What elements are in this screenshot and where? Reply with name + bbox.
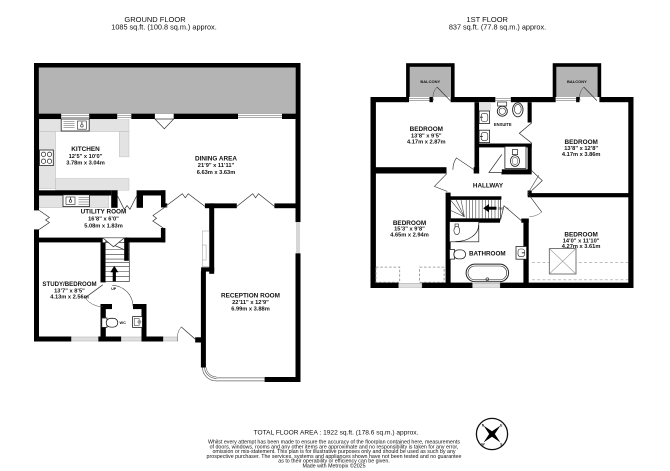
svg-text:STUDY/BEDROOM: STUDY/BEDROOM xyxy=(42,281,96,288)
svg-text:4.27m x 3.61m: 4.27m x 3.61m xyxy=(562,244,601,250)
svg-text:3.78m x 3.04m: 3.78m x 3.04m xyxy=(66,161,105,167)
svg-text:13’7" x 8’5": 13’7" x 8’5" xyxy=(54,288,85,294)
svg-text:22’11" x 12’9": 22’11" x 12’9" xyxy=(232,300,269,306)
svg-text:RECEPTION ROOM: RECEPTION ROOM xyxy=(221,293,280,300)
svg-text:6.99m x 3.88m: 6.99m x 3.88m xyxy=(231,307,270,313)
svg-text:WC: WC xyxy=(120,321,127,325)
svg-text:BEDROOM: BEDROOM xyxy=(410,126,443,133)
svg-text:ENSUITE: ENSUITE xyxy=(494,122,512,127)
svg-text:837 sq.ft. (77.8 sq.m.) approx: 837 sq.ft. (77.8 sq.m.) approx. xyxy=(449,23,546,32)
svg-text:4.65m x 2.94m: 4.65m x 2.94m xyxy=(390,233,429,239)
svg-text:4.13m x 2.56m: 4.13m x 2.56m xyxy=(50,295,89,301)
svg-text:21’9" x 11’11": 21’9" x 11’11" xyxy=(198,163,235,169)
svg-text:DINING AREA: DINING AREA xyxy=(195,156,237,163)
svg-text:5.08m x 1.83m: 5.08m x 1.83m xyxy=(84,224,123,230)
svg-text:TOTAL FLOOR AREA : 1922 sq.ft.: TOTAL FLOOR AREA : 1922 sq.ft. (178.6 sq… xyxy=(254,430,419,437)
svg-text:BALCONY: BALCONY xyxy=(420,79,440,84)
svg-text:16’8" x 6’0": 16’8" x 6’0" xyxy=(88,217,119,223)
svg-text:UP: UP xyxy=(111,287,117,291)
svg-text:BATHROOM: BATHROOM xyxy=(469,250,506,257)
svg-text:HALLWAY: HALLWAY xyxy=(473,182,504,189)
svg-text:6.63m x 3.63m: 6.63m x 3.63m xyxy=(197,170,236,176)
svg-text:KITCHEN: KITCHEN xyxy=(71,146,100,153)
svg-text:BALCONY: BALCONY xyxy=(567,79,587,84)
svg-text:UTILITY ROOM: UTILITY ROOM xyxy=(81,209,127,216)
svg-text:12’5" x 10’0": 12’5" x 10’0" xyxy=(69,154,103,160)
svg-text:4.17m x 2.87m: 4.17m x 2.87m xyxy=(407,139,446,145)
svg-text:4.17m x 3.86m: 4.17m x 3.86m xyxy=(562,152,601,158)
svg-text:Made with Metropix ©2025: Made with Metropix ©2025 xyxy=(302,463,365,470)
svg-text:1085 sq.ft. (100.8 sq.m.) appr: 1085 sq.ft. (100.8 sq.m.) approx. xyxy=(111,23,216,32)
svg-text:BEDROOM: BEDROOM xyxy=(565,139,598,146)
